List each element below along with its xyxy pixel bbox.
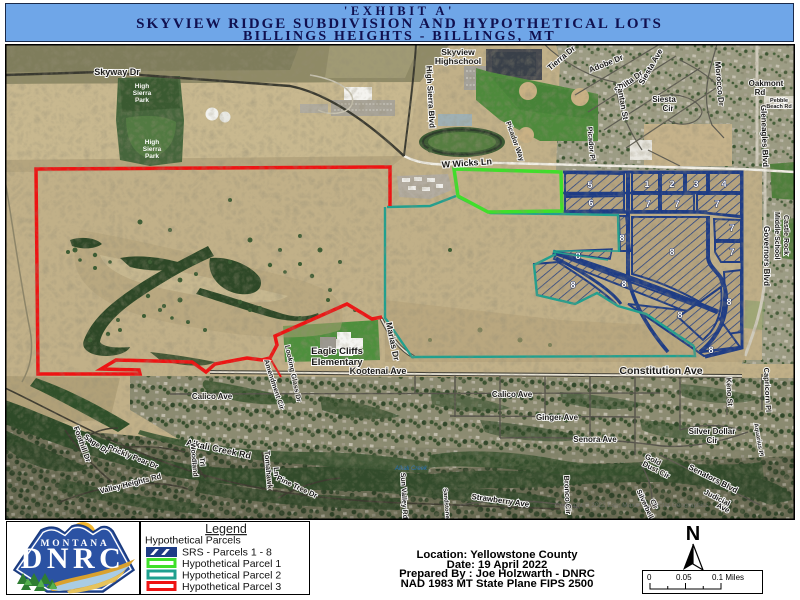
svg-text:Hypothetical Parcels: Hypothetical Parcels bbox=[145, 535, 241, 547]
svg-text:Hypothetical Parcel 3: Hypothetical Parcel 3 bbox=[182, 581, 281, 593]
svg-text:Hypothetical Parcel 2: Hypothetical Parcel 2 bbox=[182, 570, 281, 582]
svg-text:0.1 Miles: 0.1 Miles bbox=[712, 573, 744, 582]
svg-text:0: 0 bbox=[647, 573, 652, 582]
svg-text:N: N bbox=[686, 524, 700, 545]
svg-text:SRS - Parcels 1 - 8: SRS - Parcels 1 - 8 bbox=[182, 547, 272, 559]
svg-text:Hypothetical Parcel 1: Hypothetical Parcel 1 bbox=[182, 558, 281, 570]
svg-text:0.05: 0.05 bbox=[676, 573, 692, 582]
svg-text:DNRC: DNRC bbox=[21, 542, 126, 575]
